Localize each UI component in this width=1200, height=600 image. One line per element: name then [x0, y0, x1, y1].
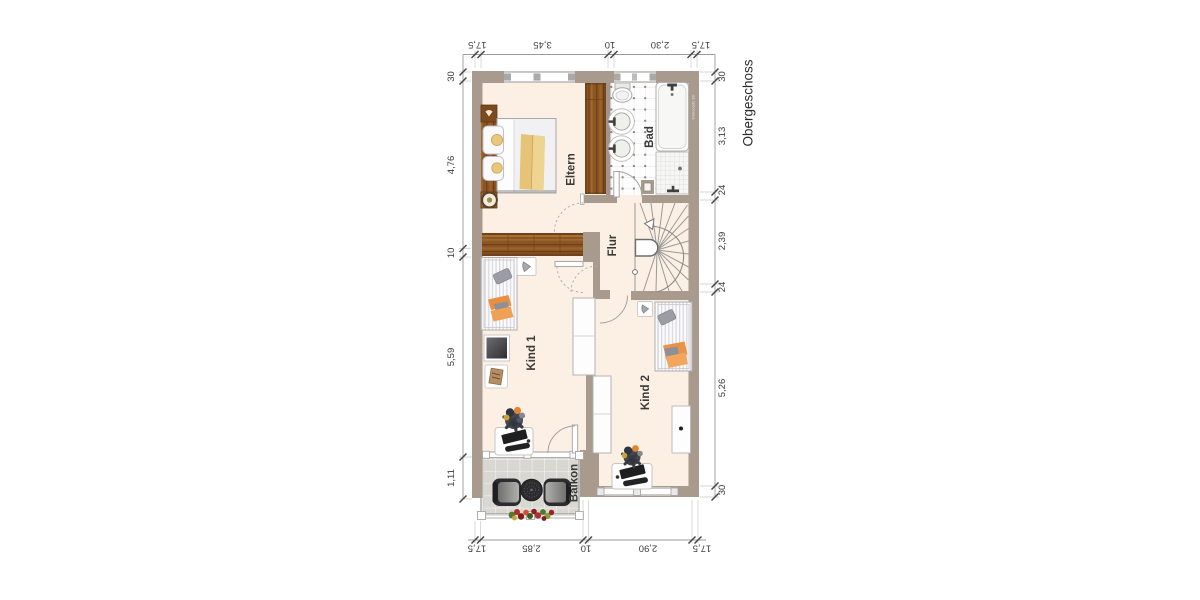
svg-text:1,11: 1,11 — [446, 469, 457, 487]
svg-text:3,13: 3,13 — [717, 127, 728, 146]
svg-text:4,76: 4,76 — [446, 156, 457, 175]
svg-text:10: 10 — [605, 39, 616, 50]
svg-text:2,85: 2,85 — [522, 543, 541, 554]
svg-text:5,59: 5,59 — [446, 348, 457, 367]
svg-text:30: 30 — [717, 71, 728, 82]
svg-text:30: 30 — [717, 485, 728, 496]
svg-text:10: 10 — [446, 248, 457, 259]
svg-text:Balkon: Balkon — [569, 464, 581, 502]
svg-text:Kind 2: Kind 2 — [640, 375, 652, 410]
svg-text:30: 30 — [446, 71, 457, 82]
svg-text:5,26: 5,26 — [717, 379, 728, 398]
svg-text:Eltern: Eltern — [566, 153, 578, 186]
svg-text:10: 10 — [581, 543, 592, 554]
svg-text:17,5: 17,5 — [692, 39, 711, 50]
svg-text:17,5: 17,5 — [693, 543, 712, 554]
svg-text:17,5: 17,5 — [468, 543, 487, 554]
svg-text:Flur: Flur — [607, 234, 619, 256]
svg-text:Obergeschoss: Obergeschoss — [741, 59, 756, 146]
svg-text:17,5: 17,5 — [468, 39, 487, 50]
svg-text:24: 24 — [717, 185, 728, 196]
svg-text:2,30: 2,30 — [651, 39, 670, 50]
svg-text:2,90: 2,90 — [639, 543, 658, 554]
svg-text:Bad: Bad — [644, 126, 656, 148]
svg-text:Kind 1: Kind 1 — [526, 335, 538, 371]
svg-text:2,39: 2,39 — [717, 232, 728, 251]
svg-text:3,45: 3,45 — [533, 39, 552, 50]
svg-text:immocado 3D: immocado 3D — [691, 95, 696, 120]
svg-text:24: 24 — [717, 282, 728, 293]
